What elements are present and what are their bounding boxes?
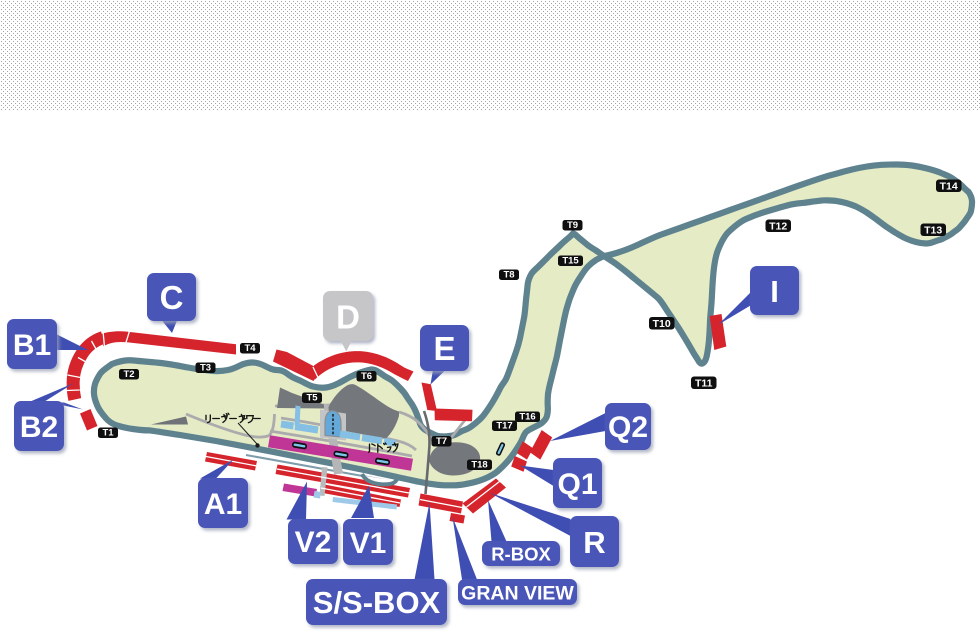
svg-text:I: I: [770, 274, 779, 309]
svg-text:T12: T12: [769, 220, 787, 232]
svg-text:T11: T11: [695, 377, 713, 389]
svg-text:Q2: Q2: [608, 411, 648, 444]
svg-text:Q1: Q1: [557, 468, 597, 501]
svg-text:T15: T15: [562, 256, 579, 267]
svg-text:T5: T5: [306, 393, 318, 404]
svg-text:E: E: [433, 330, 455, 367]
svg-text:GRAN VIEW: GRAN VIEW: [461, 583, 574, 605]
svg-text:S/S-BOX: S/S-BOX: [313, 585, 441, 620]
svg-text:B2: B2: [20, 411, 58, 444]
svg-text:R-BOX: R-BOX: [491, 544, 551, 565]
svg-text:C: C: [160, 279, 184, 316]
svg-text:V1: V1: [350, 527, 387, 560]
svg-text:T3: T3: [200, 363, 211, 374]
svg-text:T18: T18: [471, 460, 487, 471]
svg-text:T16: T16: [519, 412, 535, 423]
svg-text:T14: T14: [940, 180, 958, 192]
svg-text:V2: V2: [295, 526, 332, 559]
svg-text:R: R: [583, 525, 605, 560]
svg-text:T1: T1: [102, 428, 114, 439]
svg-text:T9: T9: [567, 220, 578, 231]
svg-text:T13: T13: [924, 224, 942, 236]
svg-text:T4: T4: [244, 343, 256, 354]
svg-text:D: D: [336, 299, 360, 336]
svg-text:T8: T8: [503, 270, 514, 281]
svg-text:T10: T10: [653, 318, 671, 330]
svg-text:B1: B1: [13, 329, 51, 362]
svg-text:T7: T7: [436, 436, 447, 447]
svg-text:A1: A1: [204, 488, 242, 521]
svg-text:T2: T2: [123, 369, 134, 380]
svg-text:T17: T17: [496, 421, 512, 432]
svg-text:T6: T6: [361, 371, 372, 382]
